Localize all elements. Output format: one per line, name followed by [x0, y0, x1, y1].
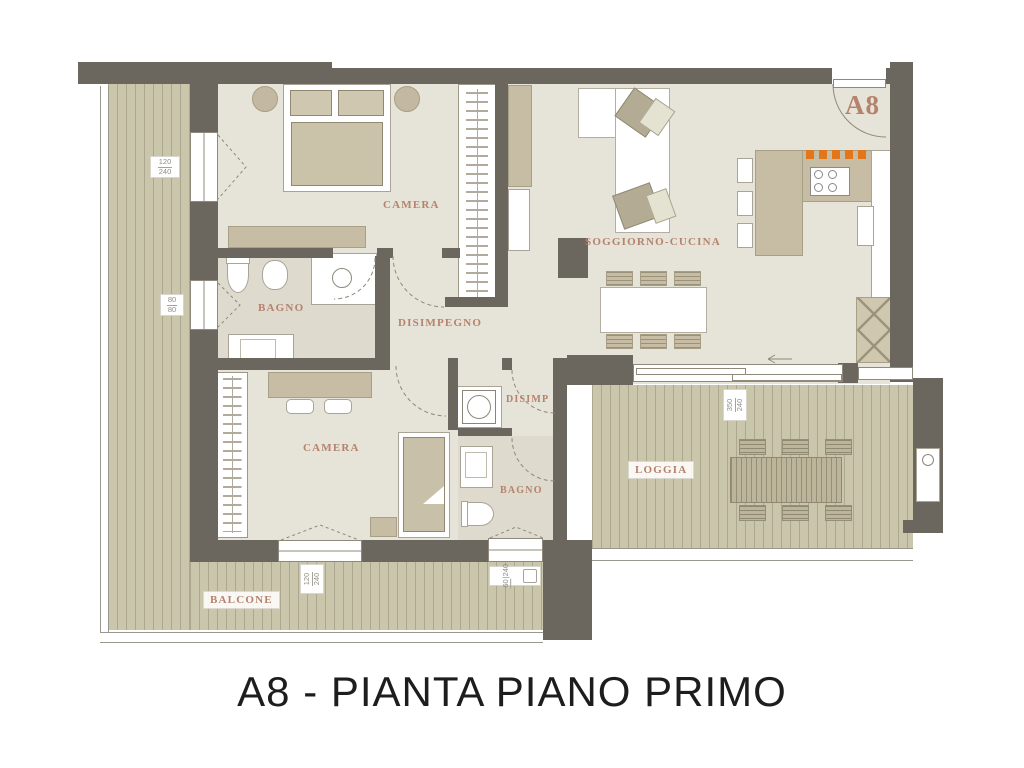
window-camera1	[190, 132, 218, 202]
burner-icon	[828, 170, 837, 179]
sideboard	[508, 85, 532, 187]
loggia-table	[730, 457, 842, 503]
bed-blanket	[403, 437, 445, 532]
dining-chair	[674, 334, 701, 349]
nightstand	[252, 86, 278, 112]
desk-chair	[324, 399, 352, 414]
loggia-chair	[825, 505, 852, 521]
sliding-panel	[636, 368, 746, 375]
entrance-accent-dashes	[806, 150, 868, 159]
wall	[218, 248, 333, 258]
wall	[190, 330, 218, 540]
loggia-chair	[782, 439, 809, 455]
floor-plan: CAMERA BAGNO DISIMPEGNO SOGGIORNO-CUCINA…	[0, 0, 1024, 768]
desk	[268, 372, 372, 398]
dim-loggia-door: 350 240	[723, 389, 747, 421]
kitchen-peninsula	[755, 150, 803, 256]
wall	[890, 62, 913, 382]
toilet	[467, 502, 494, 526]
bar-stool	[737, 191, 753, 216]
sink	[465, 452, 487, 478]
window-bagno1	[190, 280, 218, 330]
entrance-door-leaf	[833, 79, 886, 88]
dining-table	[600, 287, 707, 333]
wall	[190, 84, 218, 132]
wall	[375, 256, 390, 360]
wardrobe	[216, 372, 248, 538]
wall	[495, 84, 508, 307]
dining-chair	[606, 334, 633, 349]
wardrobe	[458, 84, 496, 304]
loggia-chair	[782, 505, 809, 521]
sliding-door-loggia	[633, 364, 843, 382]
room-label-loggia: LOGGIA	[628, 461, 694, 479]
vent-icon	[523, 569, 537, 583]
dim-bagno2-window: 60|240	[489, 566, 541, 586]
room-label-bagno1: BAGNO	[258, 302, 304, 314]
room-label-disimpegno: DISIMPEGNO	[398, 317, 482, 329]
room-label-bagno2: BAGNO	[500, 485, 543, 496]
window-sill	[858, 367, 913, 380]
wall	[190, 540, 278, 562]
room-label-balcone: BALCONE	[203, 591, 280, 609]
wall	[553, 358, 567, 542]
shower-drain	[332, 268, 352, 288]
wall	[903, 520, 943, 533]
bar-stool	[737, 223, 753, 248]
dim-values: 60|240	[502, 563, 511, 590]
room-label-camera2: CAMERA	[303, 442, 360, 454]
sink	[240, 339, 276, 360]
loggia-chair	[825, 439, 852, 455]
wall	[362, 540, 488, 562]
room-label-disimp: DISIMP	[506, 394, 549, 405]
loggia-chair	[739, 505, 766, 521]
nightstand	[394, 86, 420, 112]
dining-chair	[606, 271, 633, 286]
room-label-camera1: CAMERA	[383, 199, 440, 211]
unit-label: A8	[845, 90, 880, 121]
wall	[558, 238, 588, 278]
bed-blanket	[291, 122, 383, 186]
bed-pillow	[290, 90, 332, 116]
wall	[448, 358, 458, 430]
drain-icon	[922, 454, 934, 466]
dresser	[228, 226, 366, 248]
sliding-panel	[732, 374, 842, 381]
wall	[190, 202, 218, 280]
loggia-chair	[739, 439, 766, 455]
desk-chair	[286, 399, 314, 414]
wall	[458, 428, 512, 436]
burner-icon	[814, 170, 823, 179]
window-bagno2	[488, 538, 543, 562]
dim-bagno1-window: 80 80	[160, 294, 184, 316]
shaft-column	[856, 297, 892, 363]
wall	[567, 355, 633, 385]
sofa-chaise	[578, 88, 617, 138]
wall	[445, 297, 503, 307]
washing-machine-drum-icon	[467, 395, 491, 419]
dim-camera1-window: 120 240	[150, 156, 180, 178]
loggia-railing	[592, 548, 913, 561]
wall	[543, 540, 592, 640]
wall	[442, 248, 460, 258]
bed-pillow	[338, 90, 384, 116]
room-label-soggiorno: SOGGIORNO-CUCINA	[585, 236, 721, 248]
dim-camera2-window: 120 240	[300, 564, 324, 594]
dining-chair	[640, 271, 667, 286]
bar-stool	[737, 158, 753, 183]
burner-icon	[828, 183, 837, 192]
balcone-railing-bottom	[100, 632, 543, 643]
wall	[502, 358, 512, 370]
blanket-fold	[423, 486, 444, 504]
wall	[78, 62, 332, 84]
kitchen-sink	[857, 206, 874, 246]
balcone-railing-left	[100, 86, 109, 640]
wall	[332, 68, 832, 84]
nightstand	[370, 517, 397, 537]
dining-chair	[674, 271, 701, 286]
dining-chair	[640, 334, 667, 349]
drawing-title: A8 - PIANTA PIANO PRIMO	[0, 668, 1024, 716]
bidet	[262, 260, 288, 290]
cabinet	[508, 189, 530, 251]
wall	[218, 358, 390, 370]
window-camera2	[278, 540, 362, 562]
burner-icon	[814, 183, 823, 192]
